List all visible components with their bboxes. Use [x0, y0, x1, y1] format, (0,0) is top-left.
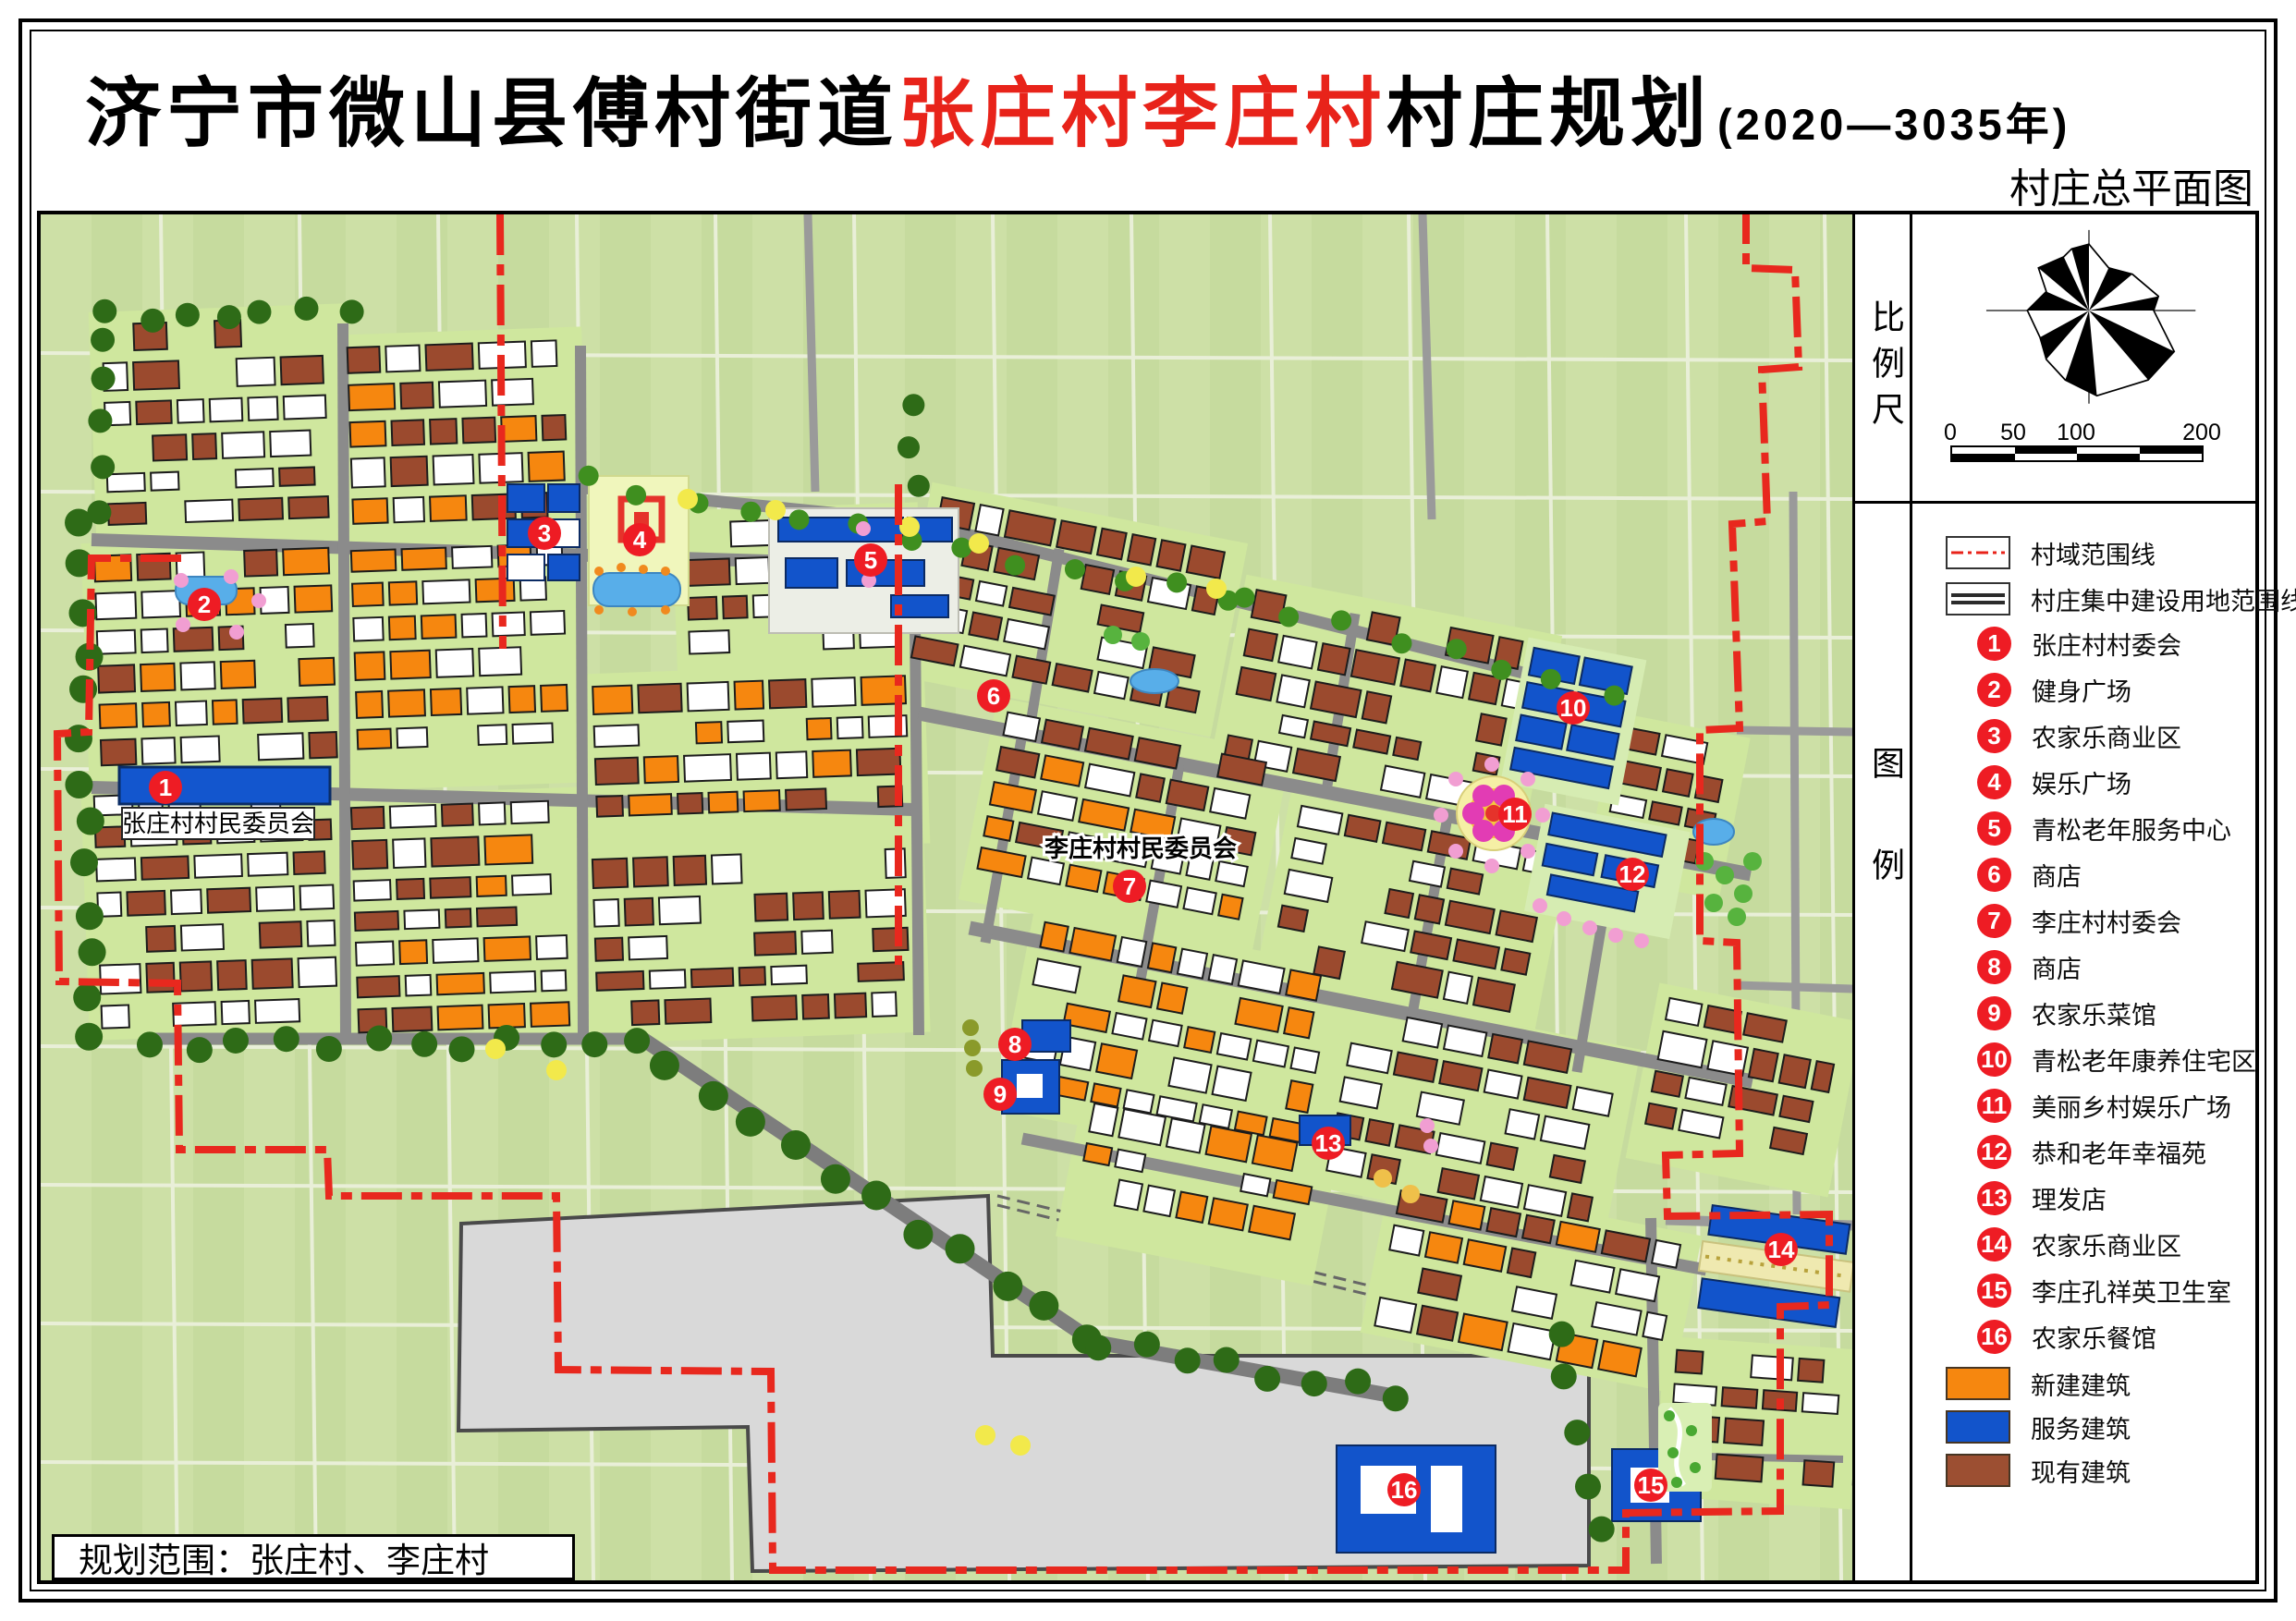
- scale-bar-labels: 050100200: [1950, 420, 2202, 444]
- legend-building-type: 现有建筑: [1946, 1450, 2131, 1491]
- scale-section-title: 比例尺: [1854, 272, 1910, 466]
- svg-text:12: 12: [1619, 860, 1646, 888]
- svg-text:10: 10: [1560, 694, 1587, 722]
- legend-poi-badge: 5: [1977, 811, 2011, 846]
- map-building-label: 李庄村村民委员会: [1044, 835, 1237, 862]
- legend-poi-item: 4娱乐广场: [1977, 762, 2131, 802]
- village-map: 张庄村村民委员会李庄村村民委员会 12345678910111213141516: [41, 214, 1852, 1580]
- legend-item-label: 新建建筑: [2031, 1366, 2131, 1402]
- legend-item-label: 村域范围线: [2031, 535, 2156, 571]
- map-building-label: 张庄村村民委员会: [122, 810, 314, 837]
- legend-poi-item: 10青松老年康养住宅区: [1977, 1039, 2256, 1079]
- legend-poi-item: 5青松老年服务中心: [1977, 808, 2231, 848]
- legend-poi-item: 13理发店: [1977, 1177, 2107, 1218]
- legend-item-label: 农家乐商业区: [2032, 1226, 2181, 1262]
- legend-poi-badge: 2: [1977, 673, 2011, 707]
- legend-item-label: 美丽乡村娱乐广场: [2032, 1088, 2231, 1124]
- svg-text:11: 11: [1502, 800, 1528, 828]
- legend-poi-item: 6商店: [1977, 854, 2082, 895]
- map-marker: 11: [1498, 798, 1532, 831]
- legend-poi-badge: 13: [1977, 1181, 2011, 1215]
- legend-list: 村域范围线村庄集中建设用地范围线1张庄村村委会2健身广场3农家乐商业区4娱乐广场…: [1912, 503, 2262, 1580]
- legend-item-label: 农家乐餐馆: [2032, 1319, 2156, 1355]
- legend-poi-item: 14农家乐商业区: [1977, 1224, 2181, 1264]
- legend-item-label: 理发店: [2032, 1180, 2107, 1216]
- legend-poi-item: 9农家乐菜馆: [1977, 993, 2156, 1033]
- map-marker: 7: [1113, 870, 1146, 903]
- legend-poi-item: 11美丽乡村娱乐广场: [1977, 1085, 2231, 1126]
- svg-text:14: 14: [1768, 1236, 1795, 1263]
- construction-boundary-swatch: [1946, 582, 2010, 615]
- map-marker: 5: [854, 543, 887, 577]
- map-marker: 16: [1387, 1473, 1421, 1506]
- drawing-frame: 张庄村村民委员会李庄村村民委员会 12345678910111213141516…: [37, 211, 2259, 1584]
- legend-item-label: 农家乐菜馆: [2032, 995, 2156, 1031]
- legend-poi-badge: 1: [1977, 627, 2011, 661]
- scale-bar: 050100200: [1950, 420, 2202, 464]
- village-boundary-swatch: [1946, 536, 2010, 569]
- title-highlight: 张庄村李庄村: [898, 72, 1386, 156]
- legend-poi-item: 7李庄村村委会: [1977, 900, 2181, 941]
- legend-item-label: 李庄村村委会: [2032, 903, 2181, 939]
- legend-poi-badge: 8: [1977, 950, 2011, 984]
- map-marker: 2: [188, 588, 221, 621]
- legend-item-label: 服务建筑: [2031, 1409, 2131, 1445]
- legend-poi-badge: 12: [1977, 1135, 2011, 1169]
- scale-tick-label: 100: [2057, 420, 2095, 446]
- legend-poi-badge: 9: [1977, 996, 2011, 1030]
- svg-text:16: 16: [1391, 1476, 1418, 1504]
- map-marker: 9: [983, 1078, 1017, 1111]
- map-marker: 12: [1616, 858, 1649, 891]
- svg-text:1: 1: [159, 774, 172, 801]
- building-type-swatch: [1946, 1367, 2010, 1400]
- map-marker: 15: [1634, 1469, 1667, 1502]
- building-type-swatch: [1946, 1454, 2010, 1487]
- legend-item-label: 商店: [2032, 949, 2082, 985]
- svg-text:9: 9: [994, 1080, 1007, 1108]
- svg-text:15: 15: [1638, 1471, 1665, 1499]
- svg-text:7: 7: [1123, 872, 1136, 900]
- building-type-swatch: [1946, 1410, 2010, 1444]
- legend-poi-item: 1张庄村村委会: [1977, 623, 2181, 664]
- legend-poi-item: 8商店: [1977, 946, 2082, 987]
- map-marker: 8: [998, 1028, 1032, 1061]
- map-marker: 6: [977, 679, 1010, 713]
- scale-tick-label: 0: [1944, 420, 1957, 446]
- svg-text:5: 5: [864, 546, 877, 574]
- scale-tick-label: 200: [2182, 420, 2221, 446]
- legend-item-label: 商店: [2032, 857, 2082, 893]
- legend-item-label: 青松老年服务中心: [2032, 810, 2231, 847]
- legend-poi-item: 3农家乐商业区: [1977, 715, 2181, 756]
- planning-scope-label: 规划范围：张庄村、李庄村: [79, 1532, 489, 1582]
- svg-text:8: 8: [1008, 1030, 1021, 1058]
- pond: [1130, 669, 1179, 693]
- svg-text:6: 6: [987, 682, 1000, 710]
- map-marker: 3: [528, 517, 561, 550]
- legend-item-label: 青松老年康养住宅区: [2032, 1042, 2256, 1078]
- legend-poi-badge: 3: [1977, 719, 2011, 753]
- legend-poi-item: 2健身广场: [1977, 669, 2131, 710]
- legend-item-label: 恭和老年幸福苑: [2032, 1134, 2206, 1170]
- legend-poi-badge: 14: [1977, 1227, 2011, 1261]
- wind-rose: [1950, 224, 2228, 413]
- svg-text:13: 13: [1315, 1129, 1342, 1157]
- legend-item-label: 健身广场: [2032, 672, 2131, 708]
- title-prefix: 济宁市微山县傅村街道: [85, 72, 898, 156]
- legend-poi-item: 15李庄孔祥英卫生室: [1977, 1270, 2231, 1310]
- legend-poi-badge: 4: [1977, 765, 2011, 799]
- svg-text:2: 2: [198, 591, 211, 618]
- title-period: (2020—3035年): [1717, 100, 2070, 149]
- page-title: 济宁市微山县傅村街道张庄村李庄村村庄规划(2020—3035年): [85, 52, 2070, 162]
- legend-item-label: 村庄集中建设用地范围线: [2031, 581, 2296, 617]
- plan-sheet: 济宁市微山县傅村街道张庄村李庄村村庄规划(2020—3035年) 村庄总平面图: [0, 0, 2296, 1621]
- map-marker: 10: [1557, 691, 1590, 725]
- scale-tick-label: 50: [2000, 420, 2026, 446]
- legend-poi-badge: 10: [1977, 1042, 2011, 1077]
- legend-item-label: 现有建筑: [2031, 1453, 2131, 1489]
- legend-item-label: 娱乐广场: [2032, 764, 2131, 800]
- map-marker: 4: [623, 523, 656, 556]
- legend-item-label: 农家乐商业区: [2032, 718, 2181, 754]
- legend-poi-badge: 7: [1977, 904, 2011, 938]
- map-marker: 1: [149, 771, 182, 804]
- legend-poi-badge: 11: [1977, 1089, 2011, 1123]
- legend-poi-badge: 6: [1977, 858, 2011, 892]
- legend-line-item: 村域范围线: [1946, 532, 2156, 573]
- legend-poi-item: 12恭和老年幸福苑: [1977, 1131, 2206, 1172]
- legend-item-label: 张庄村村委会: [2032, 626, 2181, 662]
- legend-building-type: 新建建筑: [1946, 1363, 2131, 1404]
- legend-item-label: 李庄孔祥英卫生室: [2032, 1273, 2231, 1309]
- legend-line-item: 村庄集中建设用地范围线: [1946, 579, 2296, 619]
- legend-building-type: 服务建筑: [1946, 1407, 2131, 1447]
- title-suffix: 村庄规划: [1386, 72, 1712, 156]
- legend-poi-badge: 16: [1977, 1320, 2011, 1354]
- legend-poi-badge: 15: [1977, 1274, 2011, 1308]
- legend-poi-item: 16农家乐餐馆: [1977, 1316, 2156, 1357]
- scale-bar-segments: [1950, 445, 2204, 462]
- map-marker: 13: [1312, 1127, 1345, 1160]
- svg-text:3: 3: [538, 519, 551, 547]
- planning-scope-box: 规划范围：张庄村、李庄村: [52, 1534, 575, 1580]
- svg-text:4: 4: [633, 526, 647, 554]
- map-canvas: 张庄村村民委员会李庄村村民委员会 12345678910111213141516: [41, 214, 1852, 1580]
- map-marker: 14: [1765, 1233, 1798, 1266]
- legend-section-title: 图例: [1854, 727, 1910, 968]
- sheet-type-label: 村庄总平面图: [2009, 155, 2253, 214]
